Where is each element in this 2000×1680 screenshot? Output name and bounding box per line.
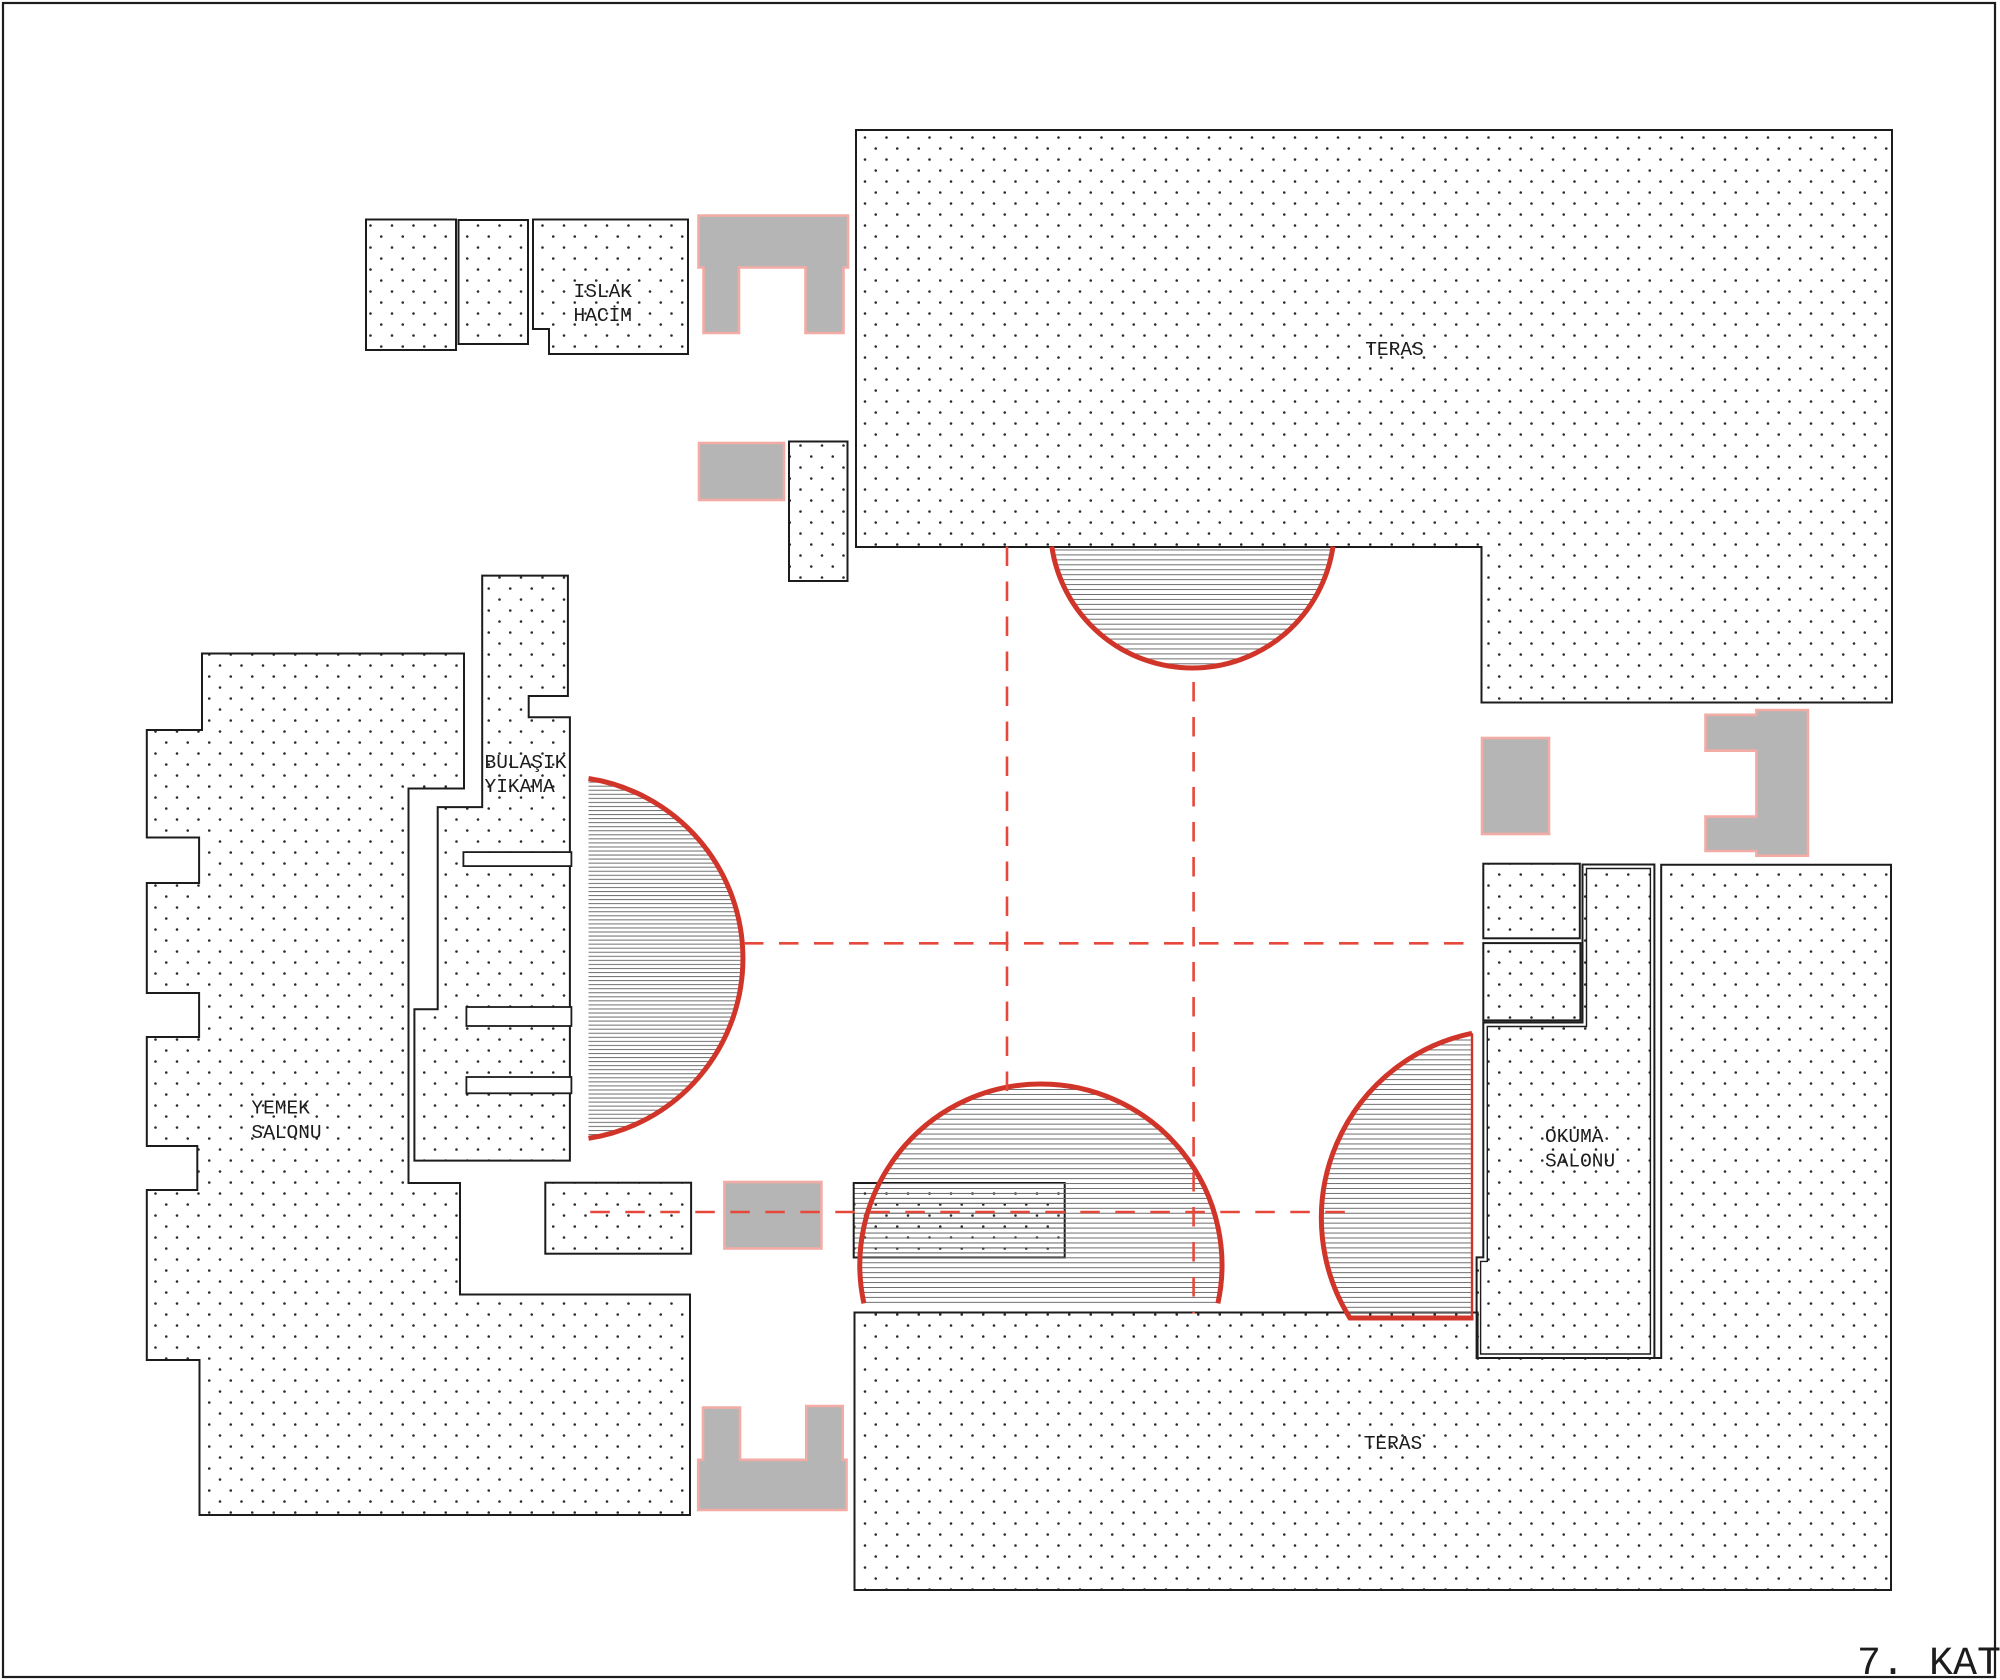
svg-text:TERAS: TERAS — [1364, 1433, 1423, 1455]
svg-text:BULAŞIK: BULAŞIK — [485, 752, 567, 774]
svg-text:OKUMA: OKUMA — [1545, 1126, 1604, 1148]
svg-text:YIKAMA: YIKAMA — [485, 776, 556, 798]
svg-text:ISLAK: ISLAK — [574, 281, 633, 303]
svg-text:YEMEK: YEMEK — [251, 1098, 310, 1120]
svg-text:SALONU: SALONU — [251, 1122, 321, 1144]
svg-text:7. KAT: 7. KAT — [1857, 1642, 2000, 1680]
svg-text:TERAS: TERAS — [1365, 339, 1424, 361]
svg-text:SALONU: SALONU — [1545, 1151, 1615, 1173]
svg-text:HACİM: HACİM — [574, 305, 633, 327]
